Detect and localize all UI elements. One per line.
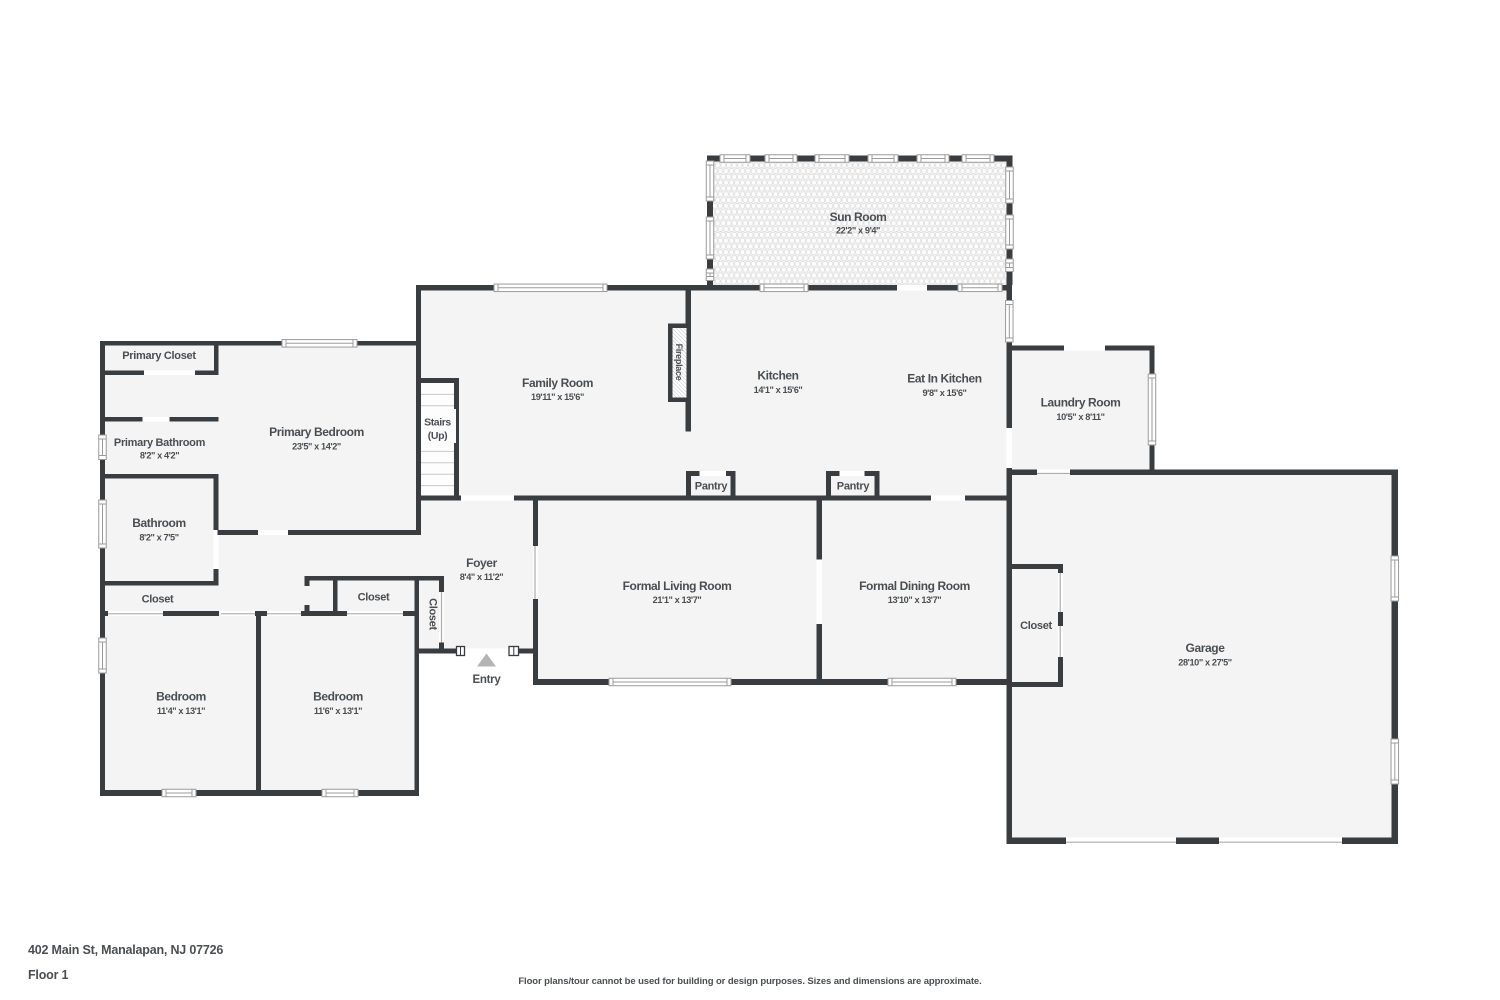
svg-text:10'5" x 8'11": 10'5" x 8'11": [1056, 412, 1104, 422]
svg-text:(Up): (Up): [428, 430, 447, 442]
svg-text:Stairs: Stairs: [424, 417, 451, 429]
svg-text:Primary Closet: Primary Closet: [122, 350, 196, 362]
svg-text:Foyer: Foyer: [466, 556, 497, 570]
svg-text:Pantry: Pantry: [695, 481, 729, 493]
svg-text:Closet: Closet: [427, 598, 439, 630]
svg-text:8'2" x 7'5": 8'2" x 7'5": [139, 533, 178, 543]
svg-text:13'10" x 13'7": 13'10" x 13'7": [888, 595, 942, 605]
svg-text:23'5" x 14'2": 23'5" x 14'2": [292, 442, 341, 452]
svg-text:Primary Bathroom: Primary Bathroom: [114, 437, 206, 449]
svg-text:8'4" x 11'2": 8'4" x 11'2": [460, 572, 504, 582]
svg-text:Eat In Kitchen: Eat In Kitchen: [907, 372, 981, 386]
svg-text:Kitchen: Kitchen: [757, 369, 798, 383]
svg-text:19'11" x 15'6": 19'11" x 15'6": [531, 392, 584, 402]
svg-text:Bedroom: Bedroom: [313, 690, 363, 704]
svg-text:Bathroom: Bathroom: [132, 516, 185, 530]
svg-text:Entry: Entry: [473, 674, 502, 686]
svg-text:Family Room: Family Room: [522, 376, 593, 390]
svg-text:11'6" x 13'1": 11'6" x 13'1": [314, 706, 362, 716]
svg-text:Closet: Closet: [1020, 620, 1052, 632]
svg-text:11'4" x 13'1": 11'4" x 13'1": [157, 706, 205, 716]
svg-text:Closet: Closet: [142, 594, 174, 606]
svg-text:Bedroom: Bedroom: [156, 690, 206, 704]
svg-text:21'1" x 13'7": 21'1" x 13'7": [653, 595, 702, 605]
svg-text:22'2" x 9'4": 22'2" x 9'4": [836, 226, 880, 236]
svg-text:Laundry Room: Laundry Room: [1041, 396, 1121, 410]
svg-text:Formal Dining Room: Formal Dining Room: [859, 579, 970, 593]
svg-text:402 Main St, Manalapan, NJ 077: 402 Main St, Manalapan, NJ 07726: [28, 943, 223, 957]
svg-text:Primary Bedroom: Primary Bedroom: [269, 425, 364, 439]
svg-text:14'1" x 15'6": 14'1" x 15'6": [754, 385, 803, 395]
svg-text:Fireplace: Fireplace: [674, 344, 684, 381]
svg-text:28'10" x 27'5": 28'10" x 27'5": [1178, 658, 1232, 668]
svg-text:Floor 1: Floor 1: [28, 968, 69, 982]
svg-text:9'8" x 15'6": 9'8" x 15'6": [922, 388, 966, 398]
svg-text:Floor plans/tour cannot be use: Floor plans/tour cannot be used for buil…: [518, 976, 981, 987]
svg-text:Pantry: Pantry: [837, 481, 871, 493]
svg-text:Closet: Closet: [358, 592, 390, 604]
svg-text:Sun Room: Sun Room: [830, 210, 887, 224]
svg-text:Garage: Garage: [1186, 641, 1226, 655]
svg-text:8'2" x 4'2": 8'2" x 4'2": [140, 451, 179, 461]
svg-text:Formal Living Room: Formal Living Room: [623, 579, 732, 593]
